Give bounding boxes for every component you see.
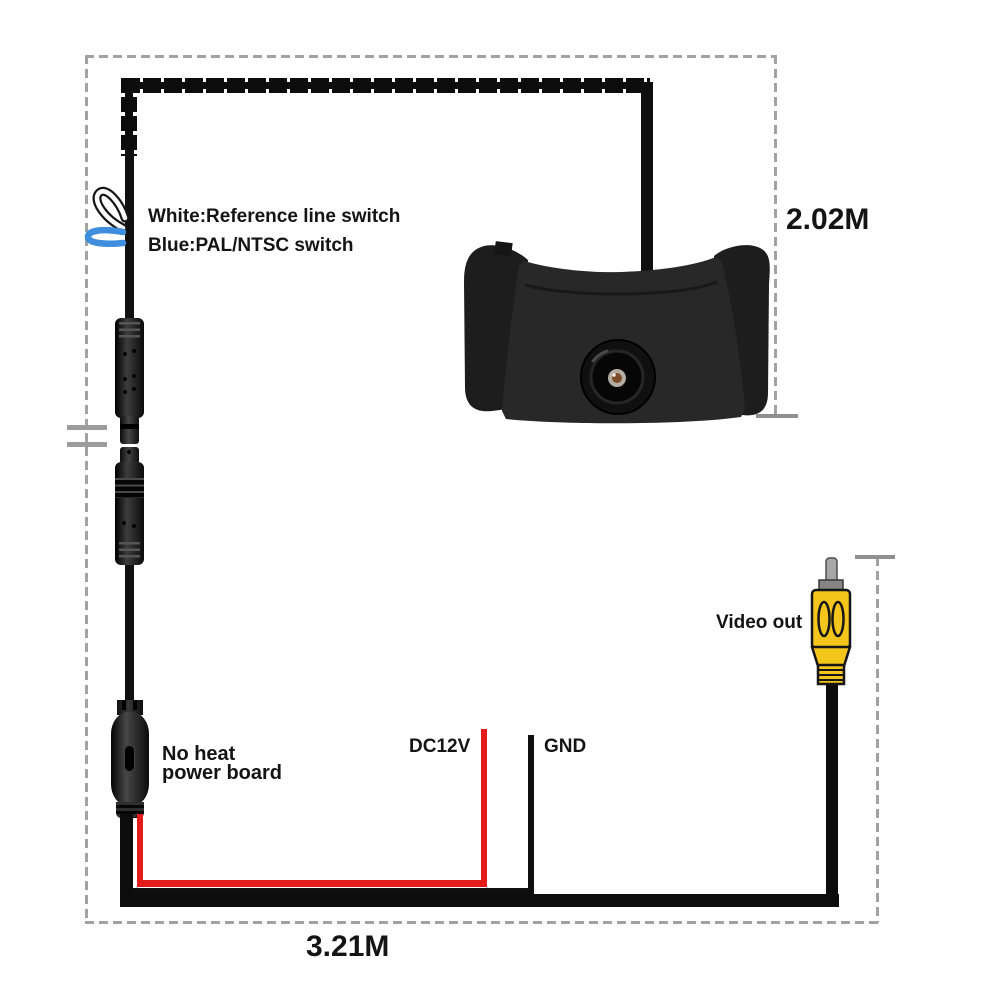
measurement-dash-top — [85, 55, 777, 58]
connector-ridge-rings — [115, 478, 144, 498]
cable-break-mark-top — [67, 425, 107, 430]
gnd-wire-run — [133, 888, 534, 894]
corrugated-tube-horizontal — [122, 78, 650, 93]
power-board-label-line2: power board — [162, 764, 282, 783]
switch-loops — [80, 182, 150, 252]
measurement-dash-vertical-right — [876, 557, 879, 923]
blue-pal-ntsc-loop — [88, 230, 123, 244]
camera-top-tab — [494, 241, 512, 256]
power-board-slot — [124, 745, 135, 772]
connector-tip-band — [120, 424, 139, 429]
cable-break-mark-bottom — [67, 442, 107, 447]
power-board-label: No heat power board — [162, 745, 282, 783]
gnd-label: GND — [544, 736, 586, 758]
rca-video-connector — [805, 553, 855, 687]
horizontal-length-label: 3.21M — [306, 930, 389, 964]
camera-wiring-diagram: White:Reference line switch Blue:PAL/NTS… — [0, 0, 1000, 1000]
connector-grill-bottom — [119, 542, 140, 561]
main-cable-horizontal — [120, 894, 839, 907]
vertical-length-label: 2.02M — [786, 203, 869, 237]
measurement-end-tick-lower — [855, 555, 895, 559]
power-board-collar-slots — [122, 700, 138, 710]
dc12v-wire-drop — [137, 814, 143, 887]
corrugated-tube-vertical — [121, 78, 137, 156]
measurement-dash-bottom-3-21m — [85, 921, 879, 924]
gnd-wire-riser — [528, 735, 534, 894]
dc12v-label: DC12V — [409, 736, 470, 758]
camera-lens-highlight — [612, 373, 616, 377]
dc12v-wire-riser — [481, 729, 487, 887]
connector-tip-dot — [127, 450, 131, 454]
rear-view-camera — [455, 235, 775, 430]
video-out-label: Video out — [716, 612, 802, 634]
video-cable — [826, 680, 838, 907]
rca-neck — [812, 647, 850, 666]
white-switch-label: White:Reference line switch — [148, 206, 400, 228]
dc12v-wire-run — [137, 880, 487, 887]
connector-dots — [122, 521, 126, 525]
connector-grill-top — [119, 322, 140, 341]
connector-male-tip — [120, 416, 139, 444]
blue-switch-label: Blue:PAL/NTSC switch — [148, 235, 354, 257]
connector-dots — [123, 352, 127, 356]
cable-segment-lower — [125, 560, 134, 705]
